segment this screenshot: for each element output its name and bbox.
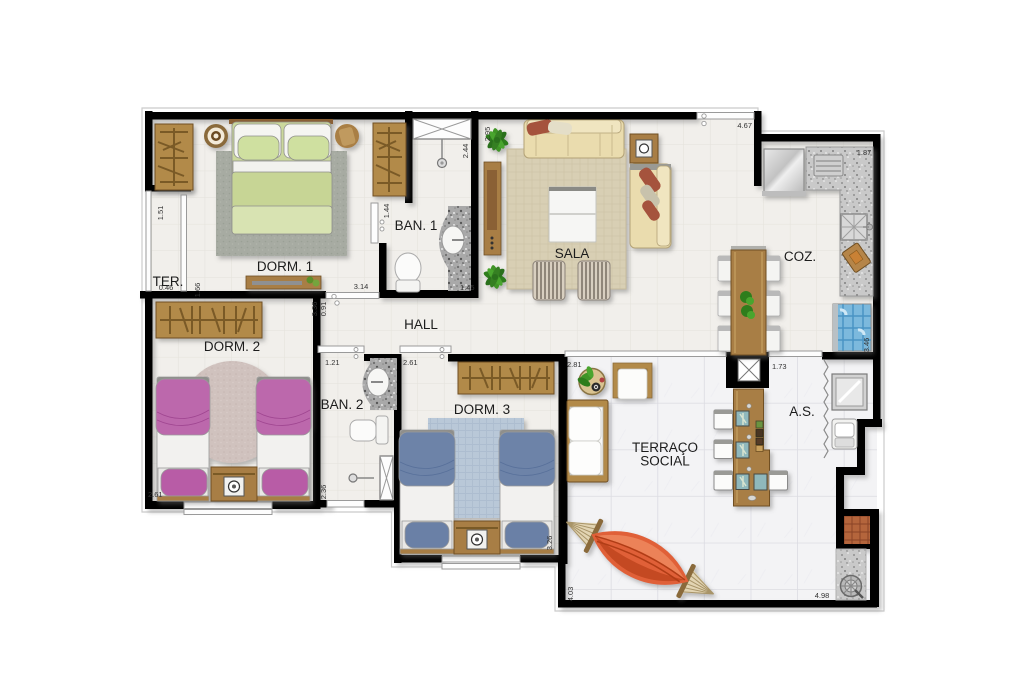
svg-text:1.21: 1.21	[325, 358, 340, 367]
svg-text:3.36: 3.36	[310, 302, 319, 317]
svg-text:2.44: 2.44	[461, 144, 470, 159]
svg-text:1.73: 1.73	[772, 362, 787, 371]
svg-text:SALA: SALA	[555, 246, 590, 261]
svg-text:DORM. 2: DORM. 2	[204, 339, 260, 354]
svg-text:HALL: HALL	[404, 317, 438, 332]
svg-text:0.46: 0.46	[159, 283, 174, 292]
svg-text:COZ.: COZ.	[784, 249, 816, 264]
svg-text:4.03: 4.03	[566, 587, 575, 602]
svg-text:3.26: 3.26	[545, 536, 554, 551]
svg-text:2.61: 2.61	[403, 358, 418, 367]
svg-text:3.46: 3.46	[862, 338, 871, 353]
svg-text:1.44: 1.44	[382, 204, 391, 219]
svg-text:BAN. 2: BAN. 2	[321, 397, 364, 412]
svg-text:1.51: 1.51	[156, 206, 165, 221]
svg-text:2.95: 2.95	[483, 127, 492, 142]
svg-text:BAN. 1: BAN. 1	[395, 218, 438, 233]
svg-text:1.45: 1.45	[460, 283, 475, 292]
svg-text:1.87: 1.87	[857, 148, 872, 157]
svg-text:SOCIAL: SOCIAL	[640, 454, 690, 469]
svg-text:A.S.: A.S.	[789, 404, 815, 419]
svg-text:3.14: 3.14	[354, 282, 369, 291]
svg-text:DORM. 3: DORM. 3	[454, 402, 510, 417]
svg-text:4.67: 4.67	[737, 121, 752, 130]
svg-text:0.91: 0.91	[319, 302, 328, 317]
svg-text:2.36: 2.36	[319, 485, 328, 500]
svg-text:4.98: 4.98	[815, 591, 830, 600]
svg-text:1.66: 1.66	[193, 283, 202, 298]
svg-text:2.61: 2.61	[148, 490, 163, 499]
svg-text:DORM. 1: DORM. 1	[257, 259, 313, 274]
svg-text:2.81: 2.81	[567, 360, 582, 369]
